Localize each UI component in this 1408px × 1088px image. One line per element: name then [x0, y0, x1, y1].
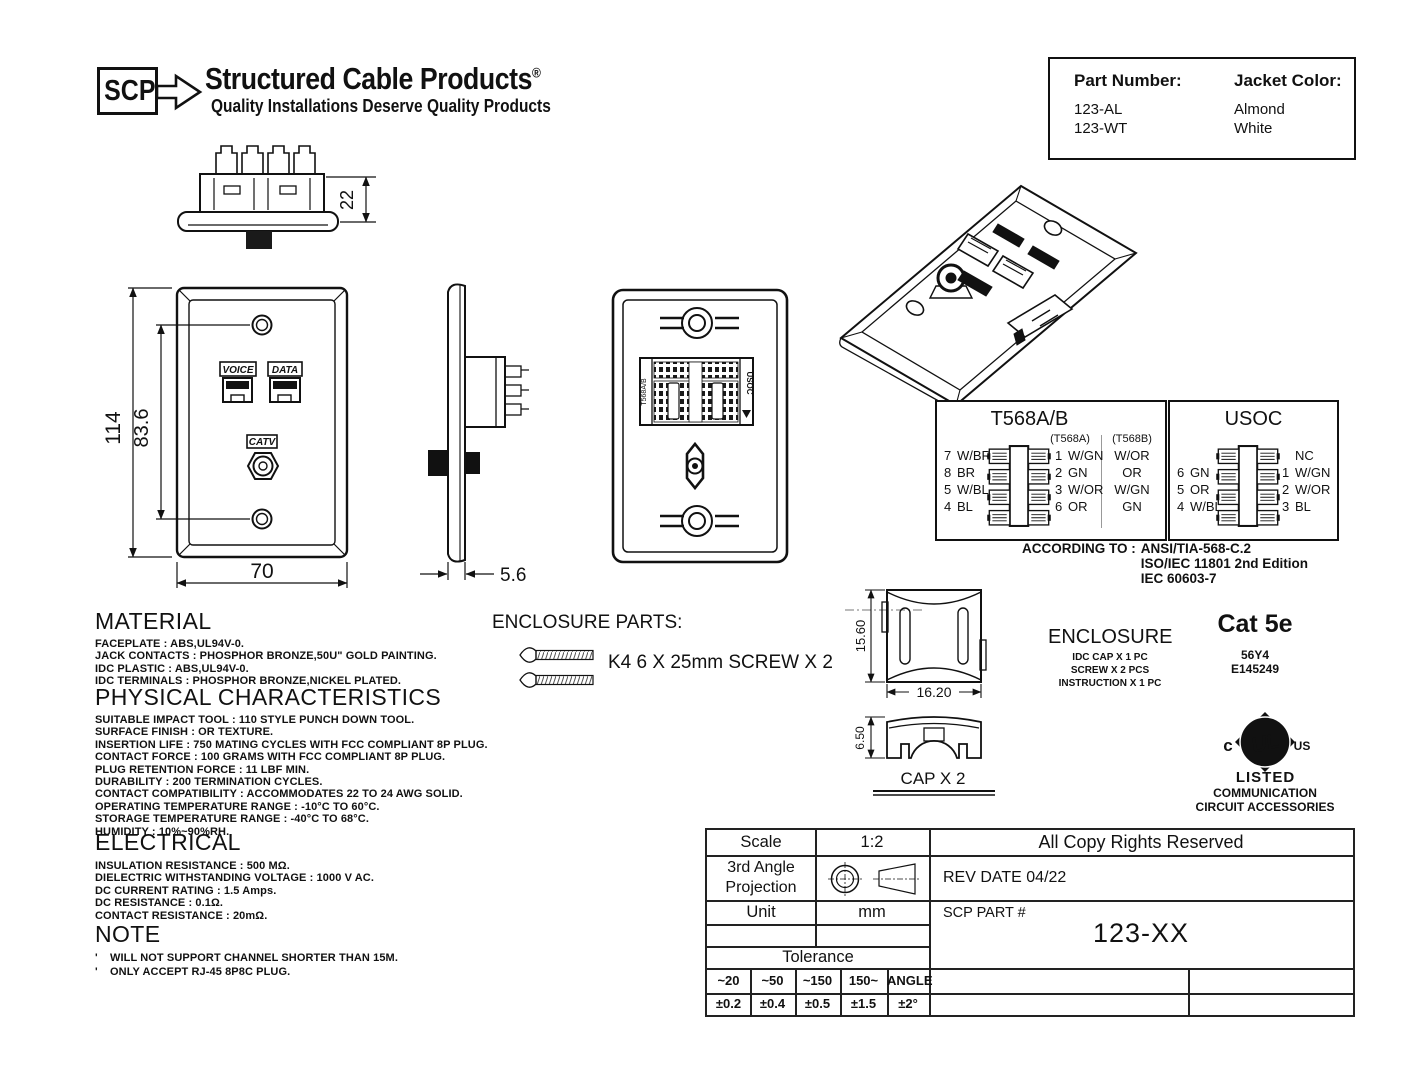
scale-value: 1:2	[815, 830, 929, 855]
tol-value: ±0.2	[707, 993, 750, 1015]
physical-line: SURFACE FINISH : OR TEXTURE.	[95, 726, 488, 738]
ul-listed-icon: UL c US	[1218, 712, 1313, 772]
ul-file-code1: 56Y4	[1205, 648, 1305, 662]
dim-screw-spacing: 83.6	[131, 409, 153, 448]
t568-left-pin-row: 5W/BL	[944, 482, 989, 497]
t568b-col-header: (T568B)	[1105, 433, 1159, 445]
ul-c: c	[1223, 736, 1232, 755]
material-line: FACEPLATE : ABS,UL94V-0.	[95, 638, 437, 650]
tol-header: ANGLE	[887, 968, 929, 993]
top-view-drawing: 22	[168, 132, 400, 274]
part-row-0-color: Almond	[1234, 101, 1285, 118]
usoc-left-pin-row: 4W/BL	[1177, 499, 1222, 514]
standards-block: ACCORDING TO : ANSI/TIA-568-C.2 ISO/IEC …	[1022, 541, 1308, 586]
t568-left-pin-row: 4BL	[944, 499, 973, 514]
logo-title-row: Structured Cable Products®	[205, 61, 595, 97]
physical-line: STORAGE TEMPERATURE RANGE : -40°C TO 68°…	[95, 813, 488, 825]
usoc-title: USOC	[1170, 408, 1337, 431]
back-right-label: USOC	[745, 371, 754, 394]
cap-count-label: CAP X 2	[901, 769, 966, 788]
t568b-value: GN	[1105, 499, 1159, 514]
unit-label: Unit	[707, 900, 815, 924]
dim-depth: 22	[337, 190, 357, 210]
tol-value: ±0.5	[795, 993, 840, 1015]
registered-mark: ®	[532, 65, 540, 81]
pin-number: 2	[1282, 482, 1295, 497]
t568-connector-icon	[987, 444, 1051, 528]
usoc-right-pin-row: 2W/OR	[1282, 482, 1330, 497]
tb-hline	[707, 924, 929, 926]
t568-right-pin-row: 1W/GN	[1055, 448, 1103, 463]
t568b-value: W/OR	[1105, 448, 1159, 463]
t568-right-pin-row: 2GN	[1055, 465, 1088, 480]
dim-cap-depth: 6.50	[853, 726, 867, 750]
projection-label: 3rd Angle Projection	[709, 857, 813, 898]
enclosure-item: INSTRUCTION X 1 PC	[1048, 677, 1172, 690]
ul-file-code2: E145249	[1205, 662, 1305, 676]
pin-color: W/BL	[1190, 499, 1222, 514]
screw-spec-label: K4 6 X 25mm SCREW X 2	[608, 652, 833, 674]
electrical-line: DC CURRENT RATING : 1.5 Amps.	[95, 885, 374, 897]
pin-number: 6	[1177, 465, 1190, 480]
pin-number: 6	[1055, 499, 1068, 514]
enclosure-contents: ENCLOSURE IDC CAP X 1 PC SCREW X 2 PCS I…	[1048, 626, 1172, 690]
projection-symbol-icon	[827, 861, 922, 897]
tol-value: ±2°	[887, 993, 929, 1015]
front-view-drawing: VOICE DATA CATV 114 83.6 70	[100, 278, 365, 593]
pin-number: 4	[944, 499, 957, 514]
pin-color-a: OR	[1068, 499, 1088, 514]
logo-tagline: Quality Installations Deserve Quality Pr…	[211, 96, 551, 117]
logo-abbr: SCP	[104, 70, 155, 112]
t568-title: T568A/B	[937, 408, 1122, 431]
t568-right-pin-row: 6OR	[1055, 499, 1088, 514]
electrical-line: DC RESISTANCE : 0.1Ω.	[95, 897, 374, 909]
material-line: IDC PLASTIC : ABS,UL94V-0.	[95, 663, 437, 675]
back-left-label: T568A/B	[641, 378, 648, 406]
material-section: MATERIAL FACEPLATE : ABS,UL94V-0. JACK C…	[95, 608, 437, 688]
rev-date: REV DATE 04/22	[943, 855, 1066, 900]
isometric-view-drawing	[818, 168, 1153, 410]
title-block: Scale 1:2 All Copy Rights Reserved 3rd A…	[705, 828, 1355, 1017]
logo-scp-box: SCP	[97, 67, 158, 115]
ul-us: US	[1294, 739, 1311, 753]
pin-color: OR	[1190, 482, 1210, 497]
pin-color: BR	[957, 465, 975, 480]
note-text: WILL NOT SUPPORT CHANNEL SHORTER THAN 15…	[110, 952, 398, 964]
t568b-value: OR	[1105, 465, 1159, 480]
material-line: JACK CONTACTS : PHOSPHOR BRONZE,50U" GOL…	[95, 650, 437, 662]
note-text: ONLY ACCEPT RJ-45 8P8C PLUG.	[110, 966, 290, 978]
datasheet-page: { "logo": { "abbr": "SCP", "title": "Str…	[0, 0, 1408, 1088]
t568b-value: W/GN	[1105, 482, 1159, 497]
logo-arrow-icon	[155, 71, 203, 113]
pin-number: 7	[944, 448, 957, 463]
standard-line: ISO/IEC 11801 2nd Edition	[1141, 556, 1308, 571]
enclosure-title: ENCLOSURE	[1048, 626, 1172, 649]
ul-category-lines: COMMUNICATION CIRCUIT ACCESSORIES	[1180, 787, 1350, 814]
scp-part-value: 123-XX	[929, 918, 1353, 949]
electrical-line: DIELECTRIC WITHSTANDING VOLTAGE : 1000 V…	[95, 872, 374, 884]
pin-color: W/BR	[957, 448, 991, 463]
physical-line: INSERTION LIFE : 750 MATING CYCLES WITH …	[95, 739, 488, 751]
side-view-drawing: 5.6	[408, 278, 553, 593]
tol-header: ~50	[750, 968, 795, 993]
note-section: NOTE 'WILL NOT SUPPORT CHANNEL SHORTER T…	[95, 921, 398, 979]
t568-left-pin-row: 8BR	[944, 465, 975, 480]
pin-number: 1	[1282, 465, 1295, 480]
pin-number: 4	[1177, 499, 1190, 514]
note-line: 'WILL NOT SUPPORT CHANNEL SHORTER THAN 1…	[95, 952, 398, 966]
pin-number: 3	[1282, 499, 1295, 514]
part-row-1-color: White	[1234, 120, 1272, 137]
note-line: 'ONLY ACCEPT RJ-45 8P8C PLUG.	[95, 966, 398, 980]
note-heading: NOTE	[95, 921, 398, 948]
voice-label: VOICE	[222, 365, 253, 376]
dim-thickness: 5.6	[500, 565, 526, 586]
note-bullet: '	[95, 966, 110, 980]
pin-color-a: W/OR	[1068, 482, 1103, 497]
usoc-wiring-box: USOC 6GN 5OR 4W/BL NC 1W/GN 2W/OR 3BL	[1168, 400, 1339, 541]
t568-wiring-box: T568A/B (T568A) (T568B) 7W/BR 8BR 5W/BL …	[935, 400, 1167, 541]
tol-value: ±1.5	[840, 993, 887, 1015]
jacket-color-header: Jacket Color:	[1234, 71, 1342, 91]
logo-tagline-row: Quality Installations Deserve Quality Pr…	[211, 96, 606, 117]
pin-number: 3	[1055, 482, 1068, 497]
usoc-right-pin-row: NC	[1282, 448, 1314, 463]
pin-color: NC	[1295, 448, 1314, 463]
standard-line: ANSI/TIA-568-C.2	[1141, 541, 1308, 556]
pin-color: W/GN	[1295, 465, 1330, 480]
copyright-text: All Copy Rights Reserved	[929, 830, 1353, 855]
pin-number: 5	[944, 482, 957, 497]
scale-label: Scale	[707, 830, 815, 855]
physical-line: CONTACT COMPATIBILITY : ACCOMMODATES 22 …	[95, 788, 488, 800]
part-row-1-part: 123-WT	[1074, 120, 1127, 137]
usoc-right-pin-row: 1W/GN	[1282, 465, 1330, 480]
enclosure-item: IDC CAP X 1 PC	[1048, 651, 1172, 664]
pin-number: 8	[944, 465, 957, 480]
tb-vline	[1188, 968, 1190, 1015]
pin-color: W/BL	[957, 482, 989, 497]
tol-header: 150~	[840, 968, 887, 993]
pin-color: GN	[1190, 465, 1210, 480]
part-row-0-part: 123-AL	[1074, 101, 1122, 118]
part-number-table: Part Number: Jacket Color: 123-AL Almond…	[1048, 57, 1356, 160]
part-number-header: Part Number:	[1074, 71, 1182, 91]
physical-line: PLUG RETENTION FORCE : 11 LBF MIN.	[95, 764, 488, 776]
electrical-heading: ELECTRICAL	[95, 829, 374, 856]
logo-title: Structured Cable Products	[205, 61, 532, 96]
physical-line: SUITABLE IMPACT TOOL : 110 STYLE PUNCH D…	[95, 714, 488, 726]
screws-drawing	[512, 640, 607, 695]
ul-category-line1: COMMUNICATION	[1180, 787, 1350, 801]
according-label: ACCORDING TO :	[1022, 541, 1136, 586]
pin-number: 2	[1055, 465, 1068, 480]
physical-heading: PHYSICAL CHARACTERISTICS	[95, 684, 488, 711]
ul-listed-label: LISTED	[1218, 769, 1313, 786]
pin-color: BL	[957, 499, 973, 514]
physical-line: CONTACT FORCE : 100 GRAMS WITH FCC COMPL…	[95, 751, 488, 763]
t568-right-pin-row: 3W/OR	[1055, 482, 1103, 497]
t568-left-pin-row: 7W/BR	[944, 448, 991, 463]
enclosure-item: SCREW X 2 PCS	[1048, 664, 1172, 677]
brand-logo: SCP Structured Cable Products® Quality I…	[97, 60, 547, 120]
catv-label: CATV	[249, 437, 277, 448]
physical-section: PHYSICAL CHARACTERISTICS SUITABLE IMPACT…	[95, 684, 488, 838]
pin-number: 1	[1055, 448, 1068, 463]
dim-width: 70	[250, 560, 273, 583]
usoc-connector-icon	[1216, 444, 1280, 528]
data-label: DATA	[272, 365, 298, 376]
pin-color: W/OR	[1295, 482, 1330, 497]
category-label: Cat 5e	[1205, 610, 1305, 639]
back-view-drawing: T568A/B USOC	[602, 278, 797, 573]
dim-cap-height: 15.60	[853, 620, 868, 653]
pin-color-a: GN	[1068, 465, 1088, 480]
note-bullet: '	[95, 952, 110, 966]
tol-header: ~150	[795, 968, 840, 993]
physical-line: DURABILITY : 200 TERMINATION CYCLES.	[95, 776, 488, 788]
enclosure-parts-heading: ENCLOSURE PARTS:	[492, 612, 682, 634]
electrical-line: INSULATION RESISTANCE : 500 MΩ.	[95, 860, 374, 872]
usoc-left-pin-row: 6GN	[1177, 465, 1210, 480]
dim-cap-width: 16.20	[916, 684, 951, 700]
electrical-section: ELECTRICAL INSULATION RESISTANCE : 500 M…	[95, 829, 374, 922]
category-block: Cat 5e 56Y4 E145249	[1205, 610, 1305, 676]
cap-side-drawing: 6.50 CAP X 2	[845, 700, 1020, 800]
pin-number: 5	[1177, 482, 1190, 497]
usoc-right-pin-row: 3BL	[1282, 499, 1311, 514]
pin-color-a: W/GN	[1068, 448, 1103, 463]
ul-category-line2: CIRCUIT ACCESSORIES	[1180, 801, 1350, 815]
unit-value: mm	[815, 900, 929, 924]
tolerance-label: Tolerance	[707, 946, 929, 968]
tol-header: ~20	[707, 968, 750, 993]
pin-color: BL	[1295, 499, 1311, 514]
tol-value: ±0.4	[750, 993, 795, 1015]
physical-line: OPERATING TEMPERATURE RANGE : -10°C TO 6…	[95, 801, 488, 813]
cap-top-drawing: 15.60 16.20	[845, 578, 1020, 703]
usoc-left-pin-row: 5OR	[1177, 482, 1210, 497]
material-heading: MATERIAL	[95, 608, 437, 635]
standard-line: IEC 60603-7	[1141, 571, 1308, 586]
dim-height: 114	[102, 411, 125, 445]
